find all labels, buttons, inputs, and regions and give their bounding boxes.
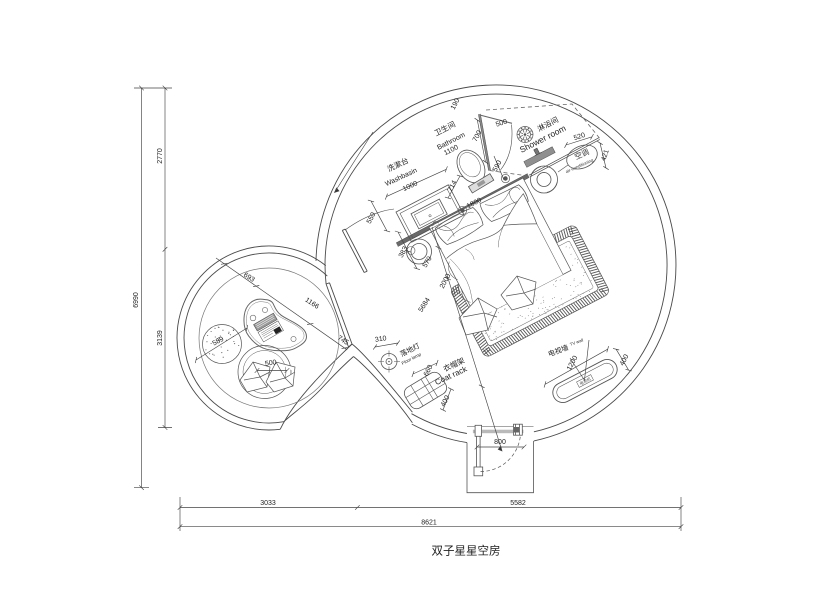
svg-text:800: 800 [494,439,506,446]
svg-text:8621: 8621 [421,520,437,527]
svg-text:2770: 2770 [157,148,164,164]
svg-text:3139: 3139 [157,330,164,346]
svg-text:3033: 3033 [260,500,276,507]
svg-text:5582: 5582 [510,500,526,507]
svg-text:6990: 6990 [133,292,140,308]
svg-text:双子星星空房: 双子星星空房 [432,544,501,558]
